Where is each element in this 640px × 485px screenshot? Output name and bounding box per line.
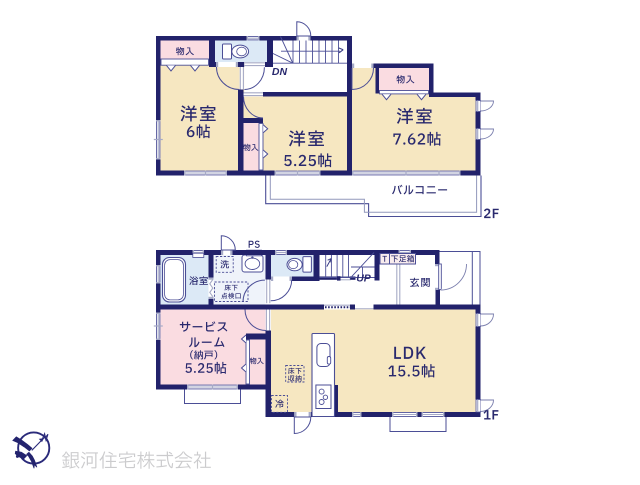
svg-text:DN: DN [272, 66, 288, 78]
svg-text:UP: UP [356, 272, 372, 284]
